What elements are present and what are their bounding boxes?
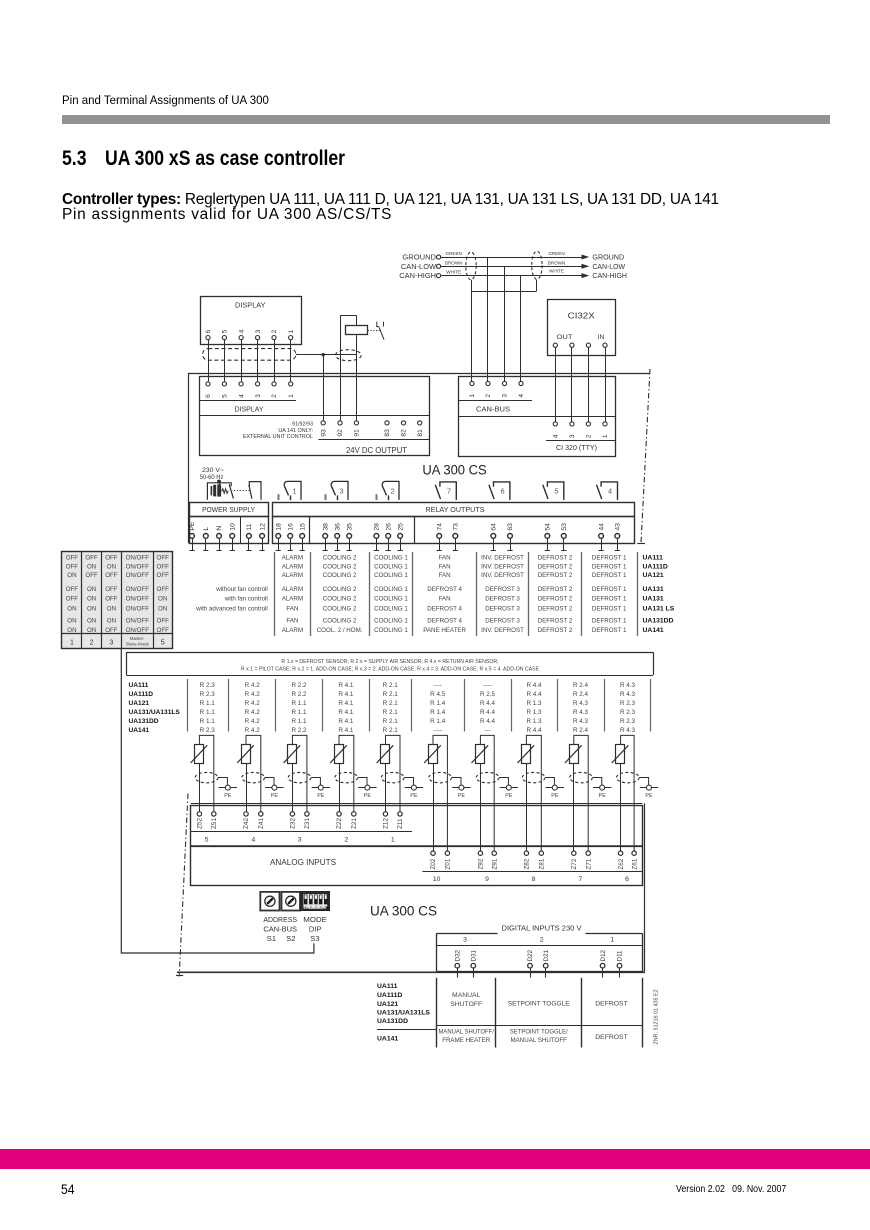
svg-text:6: 6 [205, 394, 212, 398]
svg-text:MANUAL: MANUAL [452, 992, 481, 999]
svg-text:ON: ON [67, 618, 76, 625]
svg-text:Z22: Z22 [336, 818, 343, 829]
svg-text:UA121: UA121 [643, 572, 664, 579]
svg-text:R 2.4: R 2.4 [573, 691, 589, 698]
svg-text:CAN-BUS: CAN-BUS [476, 405, 510, 414]
svg-text:PE: PE [189, 521, 196, 531]
svg-text:R 4.2: R 4.2 [245, 727, 261, 734]
svg-text:COOLING 2: COOLING 2 [323, 563, 357, 570]
svg-text:Z51: Z51 [211, 818, 218, 829]
svg-text:SHUTOFF: SHUTOFF [450, 1001, 482, 1008]
svg-text:Z61: Z61 [631, 858, 638, 869]
svg-text:R 4.4: R 4.4 [480, 700, 496, 707]
svg-text:ON/OFF: ON/OFF [126, 618, 150, 625]
svg-text:DEFROST 1: DEFROST 1 [592, 555, 627, 562]
svg-text:8: 8 [532, 876, 536, 883]
svg-text:DIP: DIP [303, 907, 308, 911]
svg-text:54: 54 [545, 523, 552, 531]
svg-text:PE: PE [599, 793, 607, 799]
svg-text:R 4.2: R 4.2 [245, 718, 261, 725]
svg-text:ON: ON [107, 605, 116, 612]
svg-text:UA121: UA121 [129, 700, 150, 707]
svg-text:DEFROST 3: DEFROST 3 [485, 586, 520, 593]
svg-text:R 2.3: R 2.3 [620, 718, 636, 725]
svg-text:GREEN: GREEN [548, 251, 564, 256]
svg-text:DEFROST 4: DEFROST 4 [427, 586, 462, 593]
svg-text:4: 4 [518, 394, 525, 398]
svg-text:DEFROST 1: DEFROST 1 [592, 627, 627, 634]
svg-text:DEFROST: DEFROST [595, 1001, 627, 1008]
svg-text:OFF: OFF [66, 586, 79, 593]
svg-text:Z12: Z12 [383, 818, 390, 829]
svg-text:ALARM: ALARM [282, 555, 303, 562]
svg-text:PE: PE [317, 793, 325, 799]
svg-text:43: 43 [615, 523, 622, 531]
svg-text:15: 15 [299, 523, 306, 531]
svg-text:INV. DEFROST: INV. DEFROST [481, 627, 524, 634]
svg-text:OFF: OFF [157, 586, 170, 593]
svg-text:COOLING 1: COOLING 1 [374, 627, 408, 634]
svg-text:UA111: UA111 [129, 682, 149, 689]
svg-text:5: 5 [161, 639, 165, 646]
svg-text:4: 4 [252, 837, 256, 844]
svg-text:DEFROST 3: DEFROST 3 [485, 618, 520, 625]
svg-text:ON: ON [87, 605, 96, 612]
svg-text:OUT: OUT [557, 334, 573, 341]
svg-text:UA111: UA111 [643, 555, 664, 562]
svg-text:FAN: FAN [286, 605, 298, 612]
svg-text:COOLING 1: COOLING 1 [374, 596, 408, 603]
svg-text:6: 6 [625, 876, 629, 883]
svg-text:63: 63 [507, 523, 514, 531]
svg-text:Z62: Z62 [618, 858, 625, 869]
svg-text:38: 38 [322, 523, 329, 531]
svg-text:1: 1 [391, 837, 395, 844]
svg-text:82: 82 [401, 429, 408, 437]
svg-text:74: 74 [436, 523, 443, 531]
svg-text:GROUND: GROUND [592, 253, 624, 262]
svg-text:Z91: Z91 [491, 858, 498, 869]
svg-text:ALARM: ALARM [282, 572, 303, 579]
svg-text:GROUND: GROUND [402, 253, 436, 262]
svg-text:Slave-Mode: Slave-Mode [126, 641, 150, 646]
svg-text:UA131 LS: UA131 LS [643, 605, 675, 612]
svg-text:OFF: OFF [66, 555, 79, 562]
svg-text:ALARM: ALARM [282, 627, 303, 634]
svg-text:UA131DD: UA131DD [129, 718, 159, 725]
svg-text:---: --- [484, 727, 490, 734]
svg-text:R 4.4: R 4.4 [526, 691, 542, 698]
svg-text:1: 1 [610, 936, 614, 943]
svg-text:INV. DEFROST: INV. DEFROST [481, 563, 524, 570]
svg-text:FAN: FAN [439, 596, 451, 603]
svg-text:----: ---- [434, 682, 442, 689]
svg-text:COOLING 1: COOLING 1 [374, 563, 408, 570]
svg-text:PE: PE [224, 793, 232, 799]
svg-text:ON: ON [158, 605, 167, 612]
svg-text:ON/OFF: ON/OFF [126, 586, 150, 593]
svg-text:INV. DEFROST: INV. DEFROST [481, 572, 524, 579]
svg-text:COOLING 1: COOLING 1 [374, 605, 408, 612]
svg-text:1: 1 [288, 394, 295, 398]
svg-text:DISPLAY: DISPLAY [235, 301, 266, 310]
svg-text:ON: ON [87, 596, 96, 603]
svg-text:ADDRESS: ADDRESS [263, 915, 297, 924]
svg-text:D22: D22 [527, 949, 534, 961]
svg-text:Z71: Z71 [585, 858, 592, 869]
svg-text:OFF: OFF [66, 563, 79, 570]
svg-text:OFF: OFF [105, 627, 118, 634]
svg-text:OFF: OFF [105, 596, 118, 603]
svg-text:ON: ON [67, 572, 76, 579]
svg-text:R 1.1: R 1.1 [291, 718, 307, 725]
svg-text:83: 83 [384, 429, 391, 437]
svg-text:DEFROST 2: DEFROST 2 [538, 627, 573, 634]
svg-text:4: 4 [238, 394, 245, 398]
svg-text:3: 3 [463, 936, 467, 943]
svg-text:UA141: UA141 [377, 1036, 398, 1043]
svg-text:COOLING 2: COOLING 2 [323, 572, 357, 579]
svg-text:DEFROST 2: DEFROST 2 [538, 572, 573, 579]
svg-text:73: 73 [453, 523, 460, 531]
svg-text:ZNR. 51216 01 435 E2: ZNR. 51216 01 435 E2 [654, 989, 660, 1044]
svg-text:OFF: OFF [105, 572, 118, 579]
svg-text:R 4.1: R 4.1 [338, 682, 354, 689]
svg-text:4: 4 [238, 329, 245, 333]
svg-text:COOL. 2 / HOM.: COOL. 2 / HOM. [317, 627, 363, 634]
svg-text:DEFROST 2: DEFROST 2 [538, 596, 573, 603]
svg-text:MODE: MODE [303, 915, 327, 924]
svg-text:26: 26 [385, 523, 392, 531]
svg-text:R 1.3: R 1.3 [526, 700, 542, 707]
svg-text:44: 44 [598, 523, 605, 531]
svg-text:CAN-HIGH: CAN-HIGH [399, 271, 436, 280]
svg-text:S3: S3 [310, 934, 319, 943]
svg-text:CAN-HIGH: CAN-HIGH [592, 271, 627, 280]
svg-text:ON/OFF: ON/OFF [126, 605, 150, 612]
svg-text:UA131: UA131 [643, 586, 664, 593]
svg-text:DEFROST 1: DEFROST 1 [592, 596, 627, 603]
svg-text:3: 3 [298, 837, 302, 844]
svg-text:3: 3 [109, 639, 113, 646]
svg-text:DEFROST 2: DEFROST 2 [538, 555, 573, 562]
svg-text:R 4.3: R 4.3 [620, 691, 636, 698]
svg-text:1: 1 [70, 639, 74, 646]
svg-text:----: ---- [483, 682, 491, 689]
svg-text:5: 5 [205, 837, 209, 844]
svg-text:ON: ON [107, 563, 116, 570]
svg-text:Z52: Z52 [197, 818, 204, 829]
svg-text:R 2.3: R 2.3 [620, 700, 636, 707]
svg-text:UA111D: UA111D [643, 563, 668, 570]
svg-text:DEFROST 2: DEFROST 2 [538, 605, 573, 612]
svg-text:1: 1 [602, 434, 609, 438]
svg-text:UA131DD: UA131DD [377, 1018, 408, 1025]
svg-text:3: 3 [502, 394, 509, 398]
svg-text:81: 81 [417, 429, 424, 437]
svg-text:Z81: Z81 [539, 858, 546, 869]
svg-text:25: 25 [397, 523, 404, 531]
svg-text:COOLING 2: COOLING 2 [323, 555, 357, 562]
svg-text:93: 93 [320, 429, 327, 437]
svg-text:R 4.1: R 4.1 [338, 709, 354, 716]
svg-text:OFF: OFF [85, 572, 98, 579]
svg-text:28: 28 [374, 523, 381, 531]
svg-text:1: 1 [288, 329, 295, 333]
svg-text:R 2.1: R 2.1 [383, 682, 399, 689]
svg-text:Z32: Z32 [290, 818, 297, 829]
svg-text:DISPLAY: DISPLAY [235, 404, 264, 413]
svg-text:Z92: Z92 [478, 858, 485, 869]
svg-text:WHITE: WHITE [549, 269, 564, 274]
svg-text:R 2.2: R 2.2 [291, 682, 307, 689]
svg-text:OFF: OFF [157, 572, 170, 579]
svg-text:FRAME HEATER: FRAME HEATER [442, 1037, 491, 1044]
svg-text:R 1.4: R 1.4 [430, 700, 446, 707]
svg-text:R 4.2: R 4.2 [245, 709, 261, 716]
svg-text:R 4.5: R 4.5 [430, 691, 446, 698]
svg-text:DEFROST 3: DEFROST 3 [485, 605, 520, 612]
svg-text:R 2.4: R 2.4 [573, 727, 589, 734]
svg-text:R 1.3: R 1.3 [526, 709, 542, 716]
svg-text:ON/OFF: ON/OFF [126, 563, 150, 570]
svg-text:64: 64 [491, 523, 498, 531]
svg-text:PE: PE [271, 793, 279, 799]
svg-text:OFF: OFF [105, 555, 118, 562]
svg-text:Z82: Z82 [524, 858, 531, 869]
svg-text:UA131/UA131LS: UA131/UA131LS [377, 1009, 430, 1016]
svg-text:DIGITAL INPUTS 230 V: DIGITAL INPUTS 230 V [502, 924, 582, 933]
svg-text:with advanced fan controll: with advanced fan controll [195, 605, 268, 612]
svg-text:DEFROST 1: DEFROST 1 [592, 563, 627, 570]
svg-text:Z42: Z42 [243, 818, 250, 829]
svg-text:----: ---- [434, 727, 442, 734]
svg-text:ON/OFF: ON/OFF [126, 555, 150, 562]
svg-text:FAN: FAN [439, 563, 451, 570]
svg-text:OFF: OFF [85, 555, 98, 562]
svg-text:R 2.1: R 2.1 [383, 727, 399, 734]
svg-text:PE: PE [458, 793, 466, 799]
svg-text:BROWN: BROWN [548, 260, 566, 265]
svg-text:ALARM: ALARM [282, 596, 303, 603]
svg-text:UA131: UA131 [643, 596, 664, 603]
svg-text:BROWN: BROWN [445, 260, 463, 265]
svg-text:6: 6 [205, 329, 212, 333]
svg-text:2: 2 [485, 394, 492, 398]
svg-text:ON: ON [321, 907, 326, 911]
svg-text:CAN-LOW: CAN-LOW [401, 262, 437, 271]
svg-text:10: 10 [229, 523, 236, 531]
svg-text:ON: ON [87, 627, 96, 634]
svg-text:RELAY OUTPUTS: RELAY OUTPUTS [426, 505, 485, 514]
svg-text:UA141: UA141 [129, 727, 150, 734]
svg-text:R 4.2: R 4.2 [245, 700, 261, 707]
svg-text:OFF: OFF [157, 618, 170, 625]
svg-text:POWER SUPPLY: POWER SUPPLY [202, 505, 255, 514]
svg-text:OFF: OFF [157, 627, 170, 634]
svg-text:PANE HEATER: PANE HEATER [423, 627, 466, 634]
svg-text:S2: S2 [286, 934, 295, 943]
svg-text:COOLING 1: COOLING 1 [374, 555, 408, 562]
svg-text:R 1.1: R 1.1 [200, 709, 216, 716]
svg-text:PE: PE [551, 793, 559, 799]
svg-text:R 1.1: R 1.1 [291, 709, 307, 716]
svg-text:24V DC OUTPUT: 24V DC OUTPUT [346, 446, 407, 455]
svg-text:12: 12 [259, 523, 266, 531]
svg-text:ON: ON [107, 618, 116, 625]
svg-text:R 4.3: R 4.3 [620, 682, 636, 689]
svg-text:DEFROST 3: DEFROST 3 [485, 596, 520, 603]
svg-text:UA131/UA131LS: UA131/UA131LS [129, 709, 181, 716]
svg-text:R 4.4: R 4.4 [480, 709, 496, 716]
svg-text:PE: PE [410, 793, 418, 799]
svg-text:R 2.3: R 2.3 [620, 709, 636, 716]
svg-text:5: 5 [222, 394, 229, 398]
svg-text:R 4.3: R 4.3 [620, 727, 636, 734]
svg-text:MANUAL SHUTOFF: MANUAL SHUTOFF [511, 1037, 568, 1044]
svg-text:DEFROST: DEFROST [595, 1034, 627, 1041]
svg-text:UA 300 CS: UA 300 CS [370, 904, 437, 920]
svg-text:DEFROST 2: DEFROST 2 [538, 586, 573, 593]
svg-text:UA141: UA141 [643, 627, 664, 634]
svg-text:CAN-BUS: CAN-BUS [263, 925, 297, 934]
svg-text:3: 3 [339, 486, 343, 495]
svg-text:R 1.1: R 1.1 [200, 718, 216, 725]
svg-text:ON: ON [87, 586, 96, 593]
svg-text:DEFROST 2: DEFROST 2 [538, 563, 573, 570]
svg-text:ON/OFF: ON/OFF [126, 572, 150, 579]
svg-text:DEFROST 2: DEFROST 2 [538, 618, 573, 625]
svg-text:OFF: OFF [105, 586, 118, 593]
svg-text:ALARM: ALARM [282, 586, 303, 593]
svg-text:R x.1 = PILOT CASE; R x.2 = 1: R x.1 = PILOT CASE; R x.2 = 1. ADD-ON CA… [241, 667, 540, 673]
svg-text:Z01: Z01 [445, 858, 452, 869]
svg-text:R 2.5: R 2.5 [480, 691, 496, 698]
svg-text:R 2.2: R 2.2 [291, 727, 307, 734]
svg-text:FAN: FAN [439, 555, 451, 562]
svg-text:DEFROST 1: DEFROST 1 [592, 586, 627, 593]
svg-text:R 4.3: R 4.3 [573, 718, 589, 725]
svg-text:18: 18 [275, 523, 282, 531]
svg-text:230 V~: 230 V~ [202, 467, 224, 474]
svg-text:Z21: Z21 [351, 818, 358, 829]
svg-text:UA 141 ONLY:: UA 141 ONLY: [278, 428, 313, 434]
svg-text:D31: D31 [471, 949, 478, 961]
svg-text:SETPOINT TOGGLE/: SETPOINT TOGGLE/ [510, 1029, 568, 1036]
svg-text:D12: D12 [600, 949, 607, 961]
svg-text:D11: D11 [617, 950, 624, 961]
svg-text:FAN: FAN [439, 572, 451, 579]
svg-text:R 1.3: R 1.3 [526, 718, 542, 725]
svg-text:16: 16 [287, 523, 294, 531]
svg-text:ON: ON [158, 596, 167, 603]
svg-text:R 4.3: R 4.3 [573, 709, 589, 716]
svg-text:S1: S1 [267, 934, 276, 943]
svg-text:53: 53 [561, 523, 568, 531]
svg-text:2: 2 [90, 639, 94, 646]
svg-text:INV. DEFROST: INV. DEFROST [481, 555, 524, 562]
svg-text:6: 6 [500, 486, 504, 495]
svg-text:1: 1 [292, 486, 296, 495]
svg-text:10: 10 [433, 876, 441, 883]
svg-text:MANUAL SHUTOFF/: MANUAL SHUTOFF/ [439, 1029, 495, 1036]
svg-text:R 2.3: R 2.3 [200, 682, 216, 689]
svg-text:COOLING 1: COOLING 1 [374, 586, 408, 593]
svg-text:R 4.1: R 4.1 [338, 727, 354, 734]
svg-text:7: 7 [447, 486, 451, 495]
svg-text:R 1.4: R 1.4 [430, 709, 446, 716]
svg-text:R 2.2: R 2.2 [291, 691, 307, 698]
svg-text:with fan controll: with fan controll [224, 596, 268, 603]
svg-text:ON: ON [67, 627, 76, 634]
svg-text:2: 2 [540, 936, 544, 943]
svg-text:5: 5 [554, 486, 558, 495]
svg-text:SETPOINT TOGGLE: SETPOINT TOGGLE [508, 1001, 570, 1008]
svg-text:R 4.2: R 4.2 [245, 682, 261, 689]
svg-text:R 1.4: R 1.4 [430, 718, 446, 725]
svg-text:DIP: DIP [309, 925, 322, 934]
svg-text:Z72: Z72 [571, 858, 578, 869]
svg-text:DEFROST 1: DEFROST 1 [592, 572, 627, 579]
svg-text:36: 36 [334, 523, 341, 531]
svg-text:R 4.4: R 4.4 [480, 718, 496, 725]
svg-text:UA121: UA121 [377, 1001, 398, 1008]
svg-text:4: 4 [553, 434, 560, 438]
svg-text:2: 2 [390, 486, 394, 495]
svg-text:ALARM: ALARM [282, 563, 303, 570]
svg-text:OFF: OFF [157, 563, 170, 570]
svg-text:ON: ON [87, 563, 96, 570]
svg-text:5: 5 [222, 329, 229, 333]
svg-text:91: 91 [354, 429, 361, 437]
svg-text:EXTERNAL UNIT CONTROL: EXTERNAL UNIT CONTROL [243, 434, 313, 440]
svg-text:R 4.1: R 4.1 [338, 691, 354, 698]
svg-text:CAN-LOW: CAN-LOW [592, 262, 625, 271]
svg-text:UA111D: UA111D [129, 691, 154, 698]
svg-text:1: 1 [469, 394, 476, 398]
svg-text:R 4.2: R 4.2 [245, 691, 261, 698]
svg-text:R 2.4: R 2.4 [573, 682, 589, 689]
svg-text:Z11: Z11 [397, 818, 404, 829]
svg-text:UA 300 CS: UA 300 CS [422, 462, 486, 478]
svg-text:3: 3 [255, 329, 262, 333]
svg-text:R 2.3: R 2.3 [200, 727, 216, 734]
svg-text:COOLING 2: COOLING 2 [323, 605, 357, 612]
svg-text:ON/OFF: ON/OFF [126, 627, 150, 634]
svg-text:ON: ON [87, 618, 96, 625]
svg-text:PE: PE [645, 793, 653, 799]
svg-text:without fan controll: without fan controll [215, 586, 268, 593]
svg-text:2: 2 [271, 394, 278, 398]
svg-text:DEFROST 4: DEFROST 4 [427, 618, 462, 625]
svg-text:D32: D32 [455, 949, 462, 961]
svg-text:R 2.1: R 2.1 [383, 718, 399, 725]
svg-text:R 2.1: R 2.1 [383, 691, 399, 698]
svg-text:R 4.4: R 4.4 [526, 682, 542, 689]
svg-text:3: 3 [569, 434, 576, 438]
svg-text:R 1.1: R 1.1 [291, 700, 307, 707]
svg-text:GREEN: GREEN [446, 251, 462, 256]
svg-text:R 1.x = DEFROST SENSOR; R 2.x: R 1.x = DEFROST SENSOR; R 2.x = SUPPLY A… [281, 659, 498, 665]
svg-text:ON: ON [67, 605, 76, 612]
svg-text:Z02: Z02 [430, 858, 437, 869]
svg-text:COOLING 1: COOLING 1 [374, 572, 408, 579]
svg-text:91/92/93: 91/92/93 [292, 421, 313, 427]
svg-text:R 4.3: R 4.3 [573, 700, 589, 707]
svg-text:PE: PE [364, 793, 372, 799]
svg-text:OFF: OFF [157, 555, 170, 562]
svg-text:92: 92 [337, 429, 344, 437]
